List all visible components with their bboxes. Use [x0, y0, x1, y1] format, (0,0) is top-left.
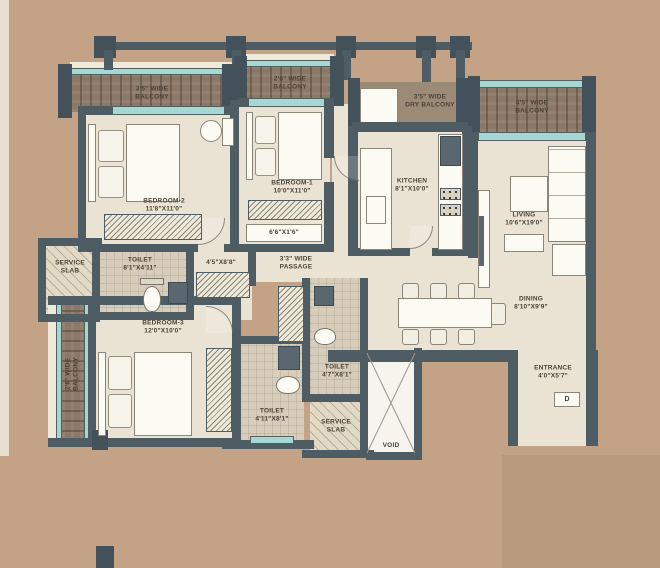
- bedroom2-side-table: [200, 120, 222, 142]
- toilet-top-wc-tank: [140, 278, 164, 285]
- dining-chair: [490, 303, 506, 325]
- toilet-top-basin: [168, 282, 188, 304]
- living-name: LIVING: [505, 212, 542, 220]
- toilet-mid-wc: [314, 328, 336, 345]
- dry-balcony-label: 3'5" WIDE DRY BALCONY: [405, 94, 455, 111]
- dining-chair: [430, 283, 447, 299]
- entrance-door-symbol: D: [554, 392, 580, 407]
- bedroom3-bed-headboard: [98, 352, 106, 436]
- entrance-dims: 4'0"X5'7": [534, 373, 572, 381]
- bedroom3-pillow: [108, 356, 132, 390]
- column: [58, 64, 72, 118]
- bedroom2-dims: 11'8"X11'0": [143, 206, 185, 214]
- bedroom3-dims: 12'0"X10'0": [142, 328, 184, 336]
- wall-stub: [422, 50, 431, 82]
- toilet-mid-name: TOILET: [322, 364, 352, 372]
- service-slab-bottom-label: SERVICE SLAB: [321, 419, 351, 436]
- wall: [352, 122, 468, 132]
- toilet-mid-label: TOILET 4'7"X8'1": [322, 364, 352, 381]
- entrance-name: ENTRANCE: [534, 365, 572, 373]
- bedroom2-bed-blanket: [126, 124, 180, 202]
- living-armchair: [510, 176, 548, 212]
- service-bottom-line1: SERVICE: [321, 419, 351, 427]
- service-left-line2: SLAB: [55, 268, 85, 276]
- dining-label: DINING 8'10"X9'9": [514, 296, 548, 313]
- bedroom1-label: BEDROOM-1 10'0"X11'0": [271, 180, 313, 197]
- bedroom2-label: BEDROOM-2 11'8"X11'0": [143, 198, 185, 215]
- passage-wardrobe: [278, 286, 304, 342]
- dressing-dim-label: 4'5"X8'8": [206, 259, 236, 267]
- wall: [78, 106, 114, 115]
- niche-dim: 6'6"X1'6": [269, 229, 299, 237]
- bedroom1-name: BEDROOM-1: [271, 180, 313, 188]
- coffee-table: [504, 234, 544, 252]
- bedroom2-bed-headboard: [88, 124, 96, 202]
- bottom-right-shade: [502, 455, 660, 568]
- entrance-door-label: D: [564, 396, 569, 403]
- balcony-left-label: 2'6" WIDE BALCONY: [65, 357, 82, 391]
- balcony-top-left-rail: [70, 68, 232, 75]
- washing-area: [360, 88, 398, 126]
- bedroom1-pillow: [255, 148, 276, 176]
- living-label: LIVING 10'6"X19'0": [505, 212, 542, 229]
- toilet-mid-dims: 4'7"X8'1": [322, 372, 352, 380]
- wall: [586, 350, 598, 446]
- tv-screen: [479, 216, 484, 266]
- bedroom3-label: BEDROOM-3 12'0"X10'0": [142, 320, 184, 337]
- bedroom2-window: [112, 106, 226, 115]
- wall: [324, 98, 334, 158]
- bedroom2-chair: [222, 118, 234, 146]
- passage-line2: PASSAGE: [280, 264, 313, 272]
- wall: [88, 296, 96, 444]
- column-stub: [96, 546, 114, 568]
- dry-balcony-line2: DRY BALCONY: [405, 102, 455, 110]
- bedroom3-bed-blanket: [134, 352, 192, 436]
- dining-chair: [402, 283, 419, 299]
- dining-table: [398, 298, 492, 328]
- wall: [239, 98, 249, 107]
- bedroom1-bed-blanket: [278, 112, 322, 180]
- dining-name: DINING: [514, 296, 548, 304]
- living-chaise: [552, 244, 586, 276]
- wall: [468, 132, 478, 258]
- kitchen-dims: 8'1"X10'0": [395, 186, 429, 194]
- bedroom1-wardrobe: [248, 200, 322, 220]
- bedroom2-pillow: [98, 166, 124, 198]
- wall-dining-bottom: [328, 350, 516, 362]
- dry-balcony-line1: 3'5" WIDE: [405, 94, 455, 102]
- dining-chair: [430, 329, 447, 345]
- wall-stub: [104, 50, 113, 70]
- wall: [302, 450, 374, 458]
- dining-dims: 8'10"X9'9": [514, 304, 548, 312]
- column: [582, 76, 596, 140]
- toilet-bottom-name: TOILET: [255, 408, 288, 416]
- dressing-wardrobe: [196, 272, 250, 298]
- bedroom3-wardrobe: [206, 348, 232, 432]
- wall: [508, 350, 518, 446]
- living-window: [478, 132, 586, 141]
- wall: [232, 296, 241, 444]
- kitchen-sink: [366, 196, 386, 224]
- toilet-top-wc: [143, 286, 161, 312]
- bedroom2-wardrobe: [104, 214, 202, 240]
- toilet-bottom-wc: [276, 376, 300, 394]
- bedroom1-dims: 10'0"X11'0": [271, 188, 313, 196]
- toilet-bottom-label: TOILET 4'11"X8'1": [255, 408, 288, 425]
- toilet-bottom-dims: 4'11"X8'1": [255, 416, 288, 424]
- void-label: VOID: [383, 442, 400, 450]
- toilet-top-label: TOILET 8'1"X4'11": [123, 257, 156, 274]
- balcony-top-mid-line2: BALCONY: [273, 84, 307, 92]
- left-edge-strip: [0, 0, 9, 456]
- bedroom1-window: [248, 98, 326, 107]
- toilet-bottom-basin: [278, 346, 300, 370]
- living-sofa: [548, 146, 586, 242]
- dining-chair: [458, 329, 475, 345]
- wall: [348, 126, 358, 254]
- wall: [324, 182, 334, 252]
- service-bottom-line2: SLAB: [321, 427, 351, 435]
- living-dims: 10'6"X19'0": [505, 220, 542, 228]
- void-cross-lines: [366, 352, 416, 454]
- service-left-line1: SERVICE: [55, 260, 85, 268]
- balcony-top-mid-rail: [246, 60, 334, 67]
- balcony-left-outer: [48, 304, 56, 442]
- bedroom1-pillow: [255, 116, 276, 144]
- toilet-bottom-window: [250, 436, 294, 444]
- toilet-mid-basin: [314, 286, 334, 306]
- dressing-dim: 4'5"X8'8": [206, 259, 236, 267]
- wall: [586, 132, 596, 358]
- bedroom1-bed-headboard: [246, 112, 253, 180]
- balcony-left-line1: 2'6" WIDE: [65, 357, 73, 391]
- dining-chair: [402, 329, 419, 345]
- balcony-left-line2: BALCONY: [73, 357, 81, 391]
- toilet-top-name: TOILET: [123, 257, 156, 265]
- balcony-top-left-line1: 3'5" WIDE: [135, 86, 169, 94]
- bedroom3-pillow: [108, 394, 132, 428]
- kitchen-hob: [440, 188, 461, 200]
- balcony-top-mid-line1: 2'6" WIDE: [273, 76, 307, 84]
- kitchen-label: KITCHEN 8'1"X10'0": [395, 178, 429, 195]
- balcony-right-line2: BALCONY: [515, 108, 549, 116]
- toilet-top-dims: 8'1"X4'11": [123, 265, 156, 273]
- kitchen-fridge: [440, 136, 461, 166]
- wall: [38, 238, 46, 322]
- balcony-right-rail: [476, 80, 588, 88]
- wall: [302, 394, 368, 402]
- balcony-right-label: 4'5" WIDE BALCONY: [515, 100, 549, 117]
- entrance-label: ENTRANCE 4'0"X5'7": [534, 365, 572, 382]
- bedroom2-name: BEDROOM-2: [143, 198, 185, 206]
- void-name: VOID: [383, 442, 400, 450]
- balcony-top-mid-label: 2'6" WIDE BALCONY: [273, 76, 307, 93]
- wall: [78, 106, 86, 252]
- passage-line1: 3'3" WIDE: [280, 256, 313, 264]
- wall: [48, 438, 238, 447]
- floor-plan: D 3'5" WIDE BALCONY 2'6" WIDE BALCONY 3'…: [0, 0, 660, 568]
- balcony-top-left-label: 3'5" WIDE BALCONY: [135, 86, 169, 103]
- balcony-top-left-line2: BALCONY: [135, 94, 169, 102]
- kitchen-hob: [440, 204, 461, 216]
- bedroom3-name: BEDROOM-3: [142, 320, 184, 328]
- service-slab-left-label: SERVICE SLAB: [55, 260, 85, 277]
- dining-chair: [458, 283, 475, 299]
- bedroom2-pillow: [98, 130, 124, 162]
- balcony-right-line1: 4'5" WIDE: [515, 100, 549, 108]
- passage-label: 3'3" WIDE PASSAGE: [280, 256, 313, 273]
- bedroom1-niche-label: 6'6"X1'6": [269, 229, 299, 237]
- kitchen-name: KITCHEN: [395, 178, 429, 186]
